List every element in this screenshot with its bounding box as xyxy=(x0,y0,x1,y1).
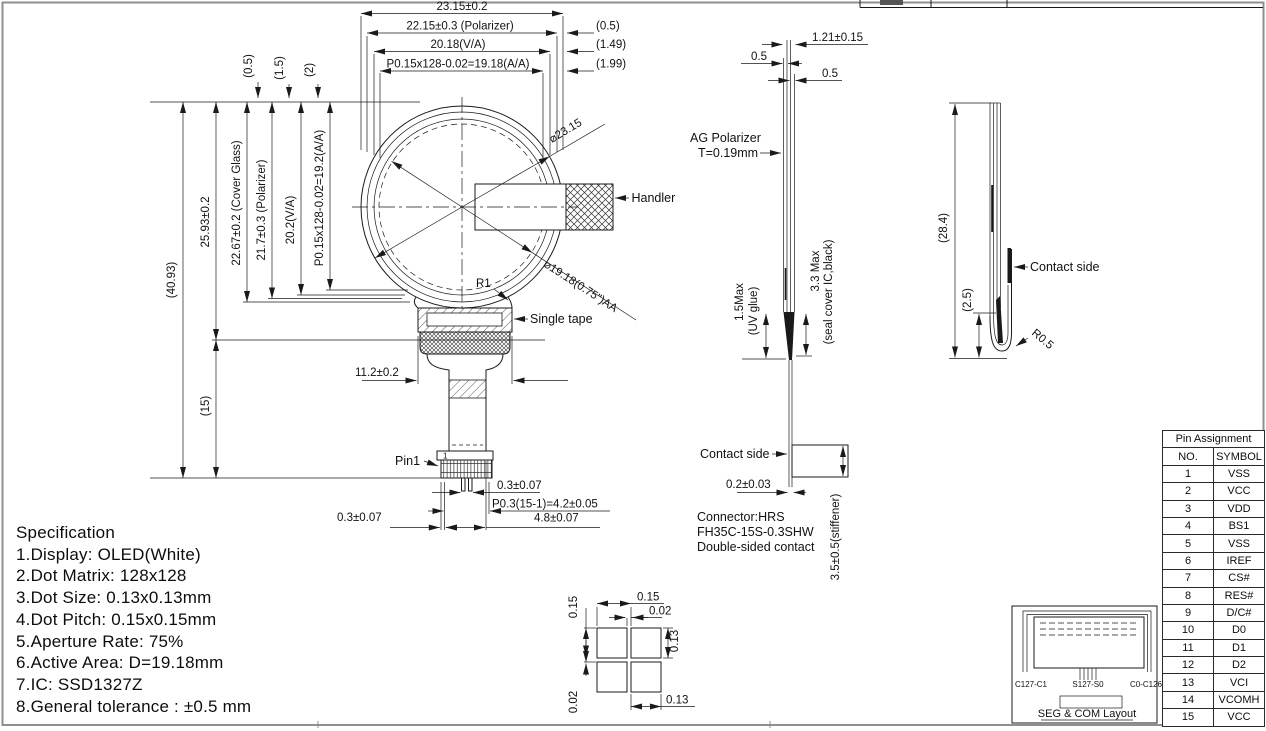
spec-item: 4.Dot Pitch: 0.15x0.15mm xyxy=(16,609,251,631)
pin-no: 5 xyxy=(1163,535,1214,552)
uv-glue-note: (UV glue) xyxy=(748,287,760,336)
specification-title: Specification xyxy=(16,522,251,544)
dim-label: 20.2(V/A) xyxy=(285,196,297,245)
pin-no: 6 xyxy=(1163,552,1214,569)
pin-row: 8RES# xyxy=(1163,587,1265,604)
pin-symbol: RES# xyxy=(1214,587,1265,604)
pin-no: 1 xyxy=(1163,465,1214,482)
connector-note-3: Double-sided contact xyxy=(697,540,815,554)
pin-row: 3VDD xyxy=(1163,500,1265,517)
single-tape-label: Single tape xyxy=(530,312,593,326)
dim-label: 0.02 xyxy=(568,691,580,713)
pin-row: 7CS# xyxy=(1163,570,1265,587)
pin-no: 2 xyxy=(1163,483,1214,500)
pin-symbol: VCOMH xyxy=(1214,691,1265,708)
dim-label: 0.13 xyxy=(666,695,688,707)
dim-label: 0.5 xyxy=(751,51,767,63)
dim-label: (0.5) xyxy=(596,21,620,33)
pin-row: 4BS1 xyxy=(1163,517,1265,534)
pin-symbol: VSS xyxy=(1214,465,1265,482)
spec-item: 2.Dot Matrix: 128x128 xyxy=(16,565,251,587)
pin-symbol: D1 xyxy=(1214,639,1265,656)
dim-label: (1.5) xyxy=(274,56,286,80)
pin-symbol: BS1 xyxy=(1214,517,1265,534)
pin-symbol: IREF xyxy=(1214,552,1265,569)
seg-label: S127-S0 xyxy=(1072,680,1104,689)
dot-pitch-detail: 0.15 0.02 0.15 0.02 0.13 0.13 xyxy=(568,592,695,714)
dim-label: 0.02 xyxy=(649,606,671,618)
dim-label: 25.93±0.2 xyxy=(200,196,212,247)
pin-col-no: NO. xyxy=(1163,448,1214,465)
pin-no: 10 xyxy=(1163,622,1214,639)
seg-com-caption: SEG & COM Layout xyxy=(1038,708,1136,720)
spec-item: 5.Aperture Rate: 75% xyxy=(16,631,251,653)
dim-label-r1: R1 xyxy=(476,278,491,290)
uv-glue-dim: 1.5Max xyxy=(734,283,746,321)
spec-item: 7.IC: SSD1327Z xyxy=(16,674,251,696)
dim-label: (1.49) xyxy=(596,39,626,51)
pin-symbol: CS# xyxy=(1214,570,1265,587)
pin-symbol: D/C# xyxy=(1214,604,1265,621)
pin-row: 13VCI xyxy=(1163,674,1265,691)
pin-row: 2VCC xyxy=(1163,483,1265,500)
pin-symbol: D0 xyxy=(1214,622,1265,639)
seal-dim: 3.3 Max xyxy=(810,250,822,291)
title-block-smudge xyxy=(880,0,903,5)
dim-label: 0.2±0.03 xyxy=(726,479,771,491)
dim-label: 11.2±0.2 xyxy=(355,367,399,379)
pin-no: 15 xyxy=(1163,709,1214,726)
pin-row: 10D0 xyxy=(1163,622,1265,639)
pin-row: 6IREF xyxy=(1163,552,1265,569)
pin-symbol: VDD xyxy=(1214,500,1265,517)
dim-label-active-area: ⌀19.18(0.75")AA xyxy=(541,258,619,315)
dim-label: (15) xyxy=(200,396,212,417)
seal-note: (seal cover IC,black) xyxy=(823,239,835,344)
dim-label: 20.18(V/A) xyxy=(431,39,486,51)
dim-label-diameter-outer: ⌀23.15 xyxy=(547,117,584,146)
spec-item: 3.Dot Size: 0.13x0.13mm xyxy=(16,587,251,609)
pin-symbol: VCI xyxy=(1214,674,1265,691)
pin-no: 12 xyxy=(1163,657,1214,674)
connector-note-1: Connector:HRS xyxy=(697,510,785,524)
pin-no: 3 xyxy=(1163,500,1214,517)
pin-row: 15VCC xyxy=(1163,709,1265,726)
dim-label: 0.3±0.07 xyxy=(337,512,382,524)
pin-symbol: VCC xyxy=(1214,709,1265,726)
dim-label: 21.7±0.3 (Polarizer) xyxy=(256,159,268,260)
contact-side-label: Contact side xyxy=(700,447,770,461)
pin1-label: Pin1 xyxy=(395,454,420,468)
dim-label: 22.15±0.3 (Polarizer) xyxy=(406,21,513,33)
pin1-number: 1 xyxy=(443,452,448,461)
pin-symbol: VSS xyxy=(1214,535,1265,552)
dim-label: 22.67±0.2 (Cover Glass) xyxy=(231,140,243,265)
pin-row: 14VCOMH xyxy=(1163,691,1265,708)
dim-label: P0.15x128-0.02=19.2(A/A) xyxy=(314,130,326,267)
pin-no: 13 xyxy=(1163,674,1214,691)
pin-no: 11 xyxy=(1163,639,1214,656)
front-view: 23.15±0.2 22.15±0.3 (Polarizer) 20.18(V/… xyxy=(150,1,675,530)
fpc-bend xyxy=(784,312,795,360)
pin-no: 7 xyxy=(1163,570,1214,587)
side-view-bent: (28.4) (2.5) Contact side R0.5 xyxy=(938,103,1100,359)
dim-label: (2) xyxy=(304,63,316,77)
dim-label-r05: R0.5 xyxy=(1029,327,1055,352)
stiffener-block xyxy=(792,445,848,477)
dim-label: 0.5 xyxy=(822,68,838,80)
side-view-flat: 1.21±0.15 0.5 0.5 AG Polarizer T=0.19mm … xyxy=(690,32,868,580)
pin-row: 9D/C# xyxy=(1163,604,1265,621)
pin-col-symbol: SYMBOL xyxy=(1214,448,1265,465)
dim-label: 0.3±0.07 xyxy=(497,480,542,492)
dim-label: (1.99) xyxy=(596,59,626,71)
dim-label: 0.15 xyxy=(637,592,659,604)
pin-row: 12D2 xyxy=(1163,657,1265,674)
contact-pads xyxy=(1008,248,1012,283)
pin-table-title-row: Pin Assignment xyxy=(1163,431,1265,448)
com-right-label: C0-C126 xyxy=(1130,680,1163,689)
com-left-label: C127-C1 xyxy=(1015,680,1048,689)
pin-row: 5VSS xyxy=(1163,535,1265,552)
pin-table-title: Pin Assignment xyxy=(1163,431,1265,448)
spec-item: 6.Active Area: D=19.18mm xyxy=(16,652,251,674)
connector-note-2: FH35C-15S-0.3SHW xyxy=(697,525,814,539)
contact-side-label: Contact side xyxy=(1030,260,1100,274)
spec-item: 1.Display: OLED(White) xyxy=(16,544,251,566)
dim-label: 0.13 xyxy=(669,630,681,652)
dim-label: P0.15x128-0.02=19.18(A/A) xyxy=(387,59,530,71)
dim-label: (28.4) xyxy=(938,213,950,243)
spec-item: 8.General tolerance : ±0.5 mm xyxy=(16,696,251,718)
dim-label: (40.93) xyxy=(166,262,178,299)
oled-module-drawing-sheet: 23.15±0.2 22.15±0.3 (Polarizer) 20.18(V/… xyxy=(0,0,1266,731)
pin-row: 1VSS xyxy=(1163,465,1265,482)
seg-com-layout: C127-C1 S127-S0 C0-C126 SEG & COM Layout xyxy=(1012,606,1163,723)
ag-polarizer-thickness: T=0.19mm xyxy=(698,146,758,160)
pin-table-header-row: NO. SYMBOL xyxy=(1163,448,1265,465)
pin-no: 14 xyxy=(1163,691,1214,708)
pin-row: 11D1 xyxy=(1163,639,1265,656)
dim-label: 23.15±0.2 xyxy=(436,1,487,13)
stiffener-dim: 3.5±0.5(stiffener) xyxy=(830,494,842,581)
handler-label: Handler xyxy=(632,191,676,205)
pin-symbol: VCC xyxy=(1214,483,1265,500)
ag-polarizer-note: AG Polarizer xyxy=(690,131,761,145)
dim-label: (0.5) xyxy=(243,54,255,78)
pin-no: 8 xyxy=(1163,587,1214,604)
pin-no: 9 xyxy=(1163,604,1214,621)
pin-assignment-table: Pin Assignment NO. SYMBOL 1VSS 2VCC 3VDD… xyxy=(1162,430,1265,727)
dim-label: 1.21±0.15 xyxy=(812,32,863,44)
dim-label: (2.5) xyxy=(962,288,974,312)
pin-symbol: D2 xyxy=(1214,657,1265,674)
pin-no: 4 xyxy=(1163,517,1214,534)
specification-block: Specification 1.Display: OLED(White) 2.D… xyxy=(16,522,251,717)
dim-label: P0.3(15-1)=4.2±0.05 xyxy=(492,499,598,511)
title-block-fragment xyxy=(860,0,1263,8)
tape-and-fpc xyxy=(414,297,512,491)
dim-label: 0.15 xyxy=(568,596,580,618)
dim-label: 4.8±0.07 xyxy=(534,513,579,525)
